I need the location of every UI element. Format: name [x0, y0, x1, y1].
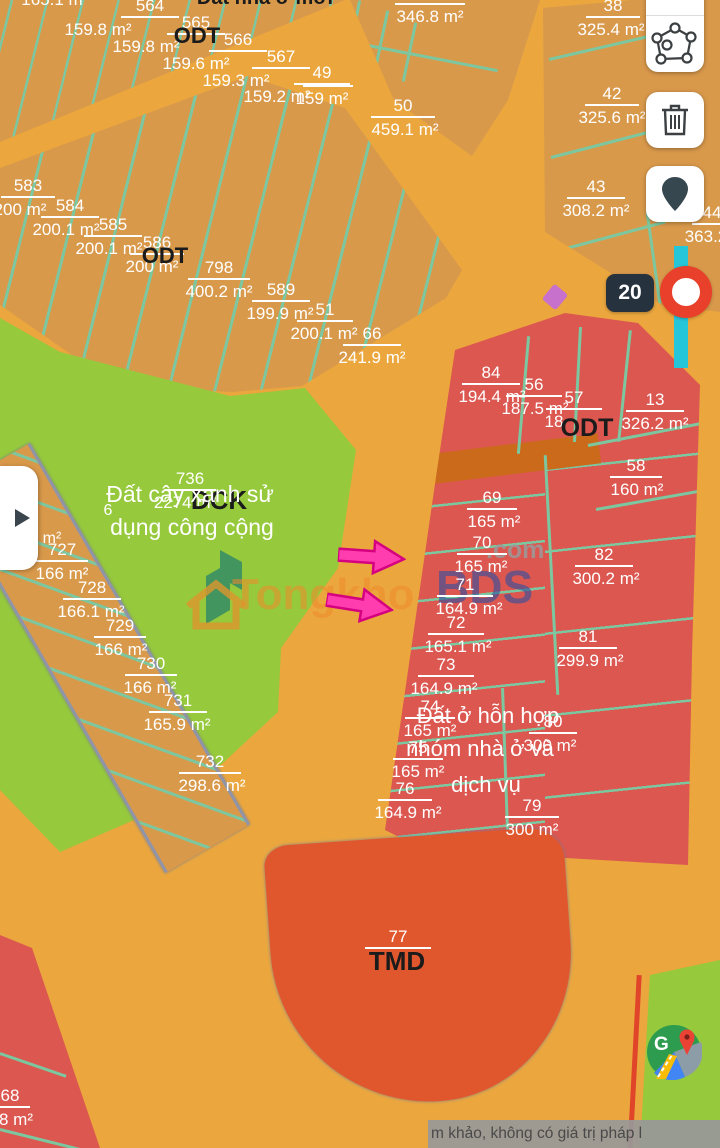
zone-text: ODT — [27, 24, 367, 48]
delete-button[interactable] — [646, 92, 704, 148]
zone-text: dịch vụ — [316, 773, 656, 797]
svg-text:G: G — [654, 1034, 669, 1055]
trash-icon — [658, 102, 692, 138]
zone-text: nhóm nhà ở và — [310, 737, 650, 761]
measure-icon[interactable] — [646, 0, 704, 15]
map-marker[interactable] — [660, 266, 712, 318]
google-maps-icon[interactable]: G — [646, 1024, 702, 1080]
zone-texts-layer: Đất nhà ở mới165.1 mODTODTODTDCKTMDĐất c… — [0, 0, 720, 1148]
tools-button-group[interactable] — [646, 0, 704, 72]
draw-polygon-icon[interactable] — [646, 16, 704, 72]
location-pin-button[interactable] — [646, 166, 704, 222]
disclaimer-bar: m khảo, không có giá trị pháp l — [428, 1120, 720, 1148]
zone-text: TMD — [227, 947, 567, 976]
route-badge[interactable]: 20 — [606, 274, 654, 312]
expand-sidebar-button[interactable] — [0, 466, 38, 570]
zone-text: ODT — [417, 415, 720, 443]
play-icon — [15, 509, 30, 527]
zone-text: ODT — [0, 244, 335, 268]
location-pin-icon — [660, 175, 690, 213]
zone-text: Đất ở hỗn hợp — [318, 704, 658, 728]
map-canvas[interactable]: Tongkho BDS .com 564159.8 m²565159.8 m²5… — [0, 0, 720, 1148]
zone-text: 165.1 m — [0, 0, 222, 10]
zone-text: 6 — [0, 502, 278, 520]
